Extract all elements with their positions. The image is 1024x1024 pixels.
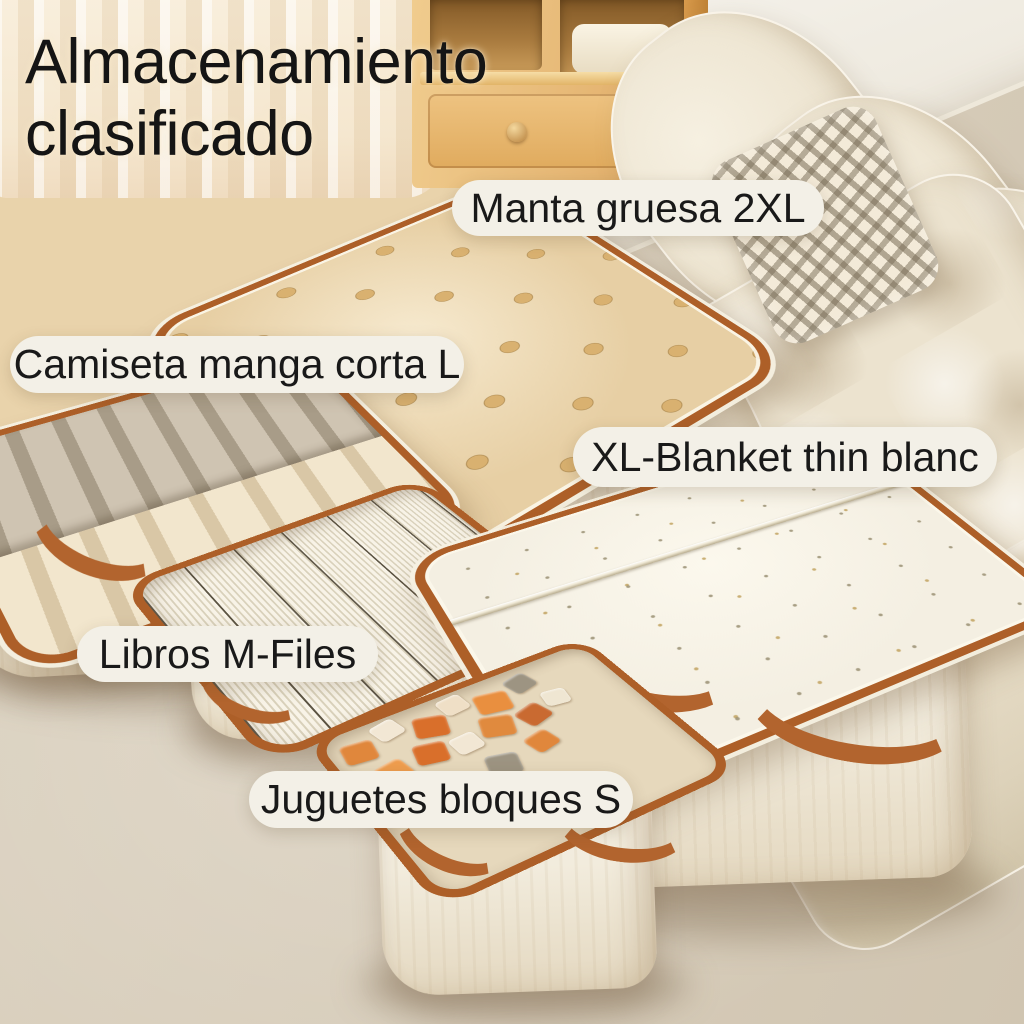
toy-block: [501, 672, 539, 695]
drawer-knob: [507, 122, 527, 142]
toy-block: [338, 739, 381, 767]
label-camiseta-manga-corta-l: Camiseta manga corta L: [10, 336, 464, 393]
label-juguetes-bloques-s: Juguetes bloques S: [249, 771, 633, 828]
toy-block: [477, 713, 518, 738]
toy-block: [411, 714, 452, 740]
label-text: Libros M-Files: [99, 631, 356, 678]
page-title-line2: clasificado: [25, 98, 487, 170]
label-text: Manta gruesa 2XL: [470, 185, 805, 232]
page-title: Almacenamiento clasificado: [25, 26, 487, 170]
product-photo-scene: Almacenamiento clasificado Manta gruesa …: [0, 0, 1024, 1024]
label-text: XL-Blanket thin blanc: [591, 434, 978, 481]
label-xl-blanket-thin-blanc: XL-Blanket thin blanc: [573, 427, 997, 487]
toy-block: [367, 718, 407, 743]
label-text: Juguetes bloques S: [261, 776, 621, 823]
toy-block: [539, 687, 573, 707]
toy-block: [433, 694, 472, 718]
label-text: Camiseta manga corta L: [14, 341, 461, 388]
label-libros-m-files: Libros M-Files: [77, 626, 378, 682]
toy-block: [447, 731, 487, 756]
toy-block: [411, 740, 452, 766]
page-title-line1: Almacenamiento: [25, 26, 487, 98]
toy-block: [471, 689, 516, 715]
toy-block: [522, 728, 562, 754]
label-manta-gruesa-2xl: Manta gruesa 2XL: [452, 180, 824, 236]
